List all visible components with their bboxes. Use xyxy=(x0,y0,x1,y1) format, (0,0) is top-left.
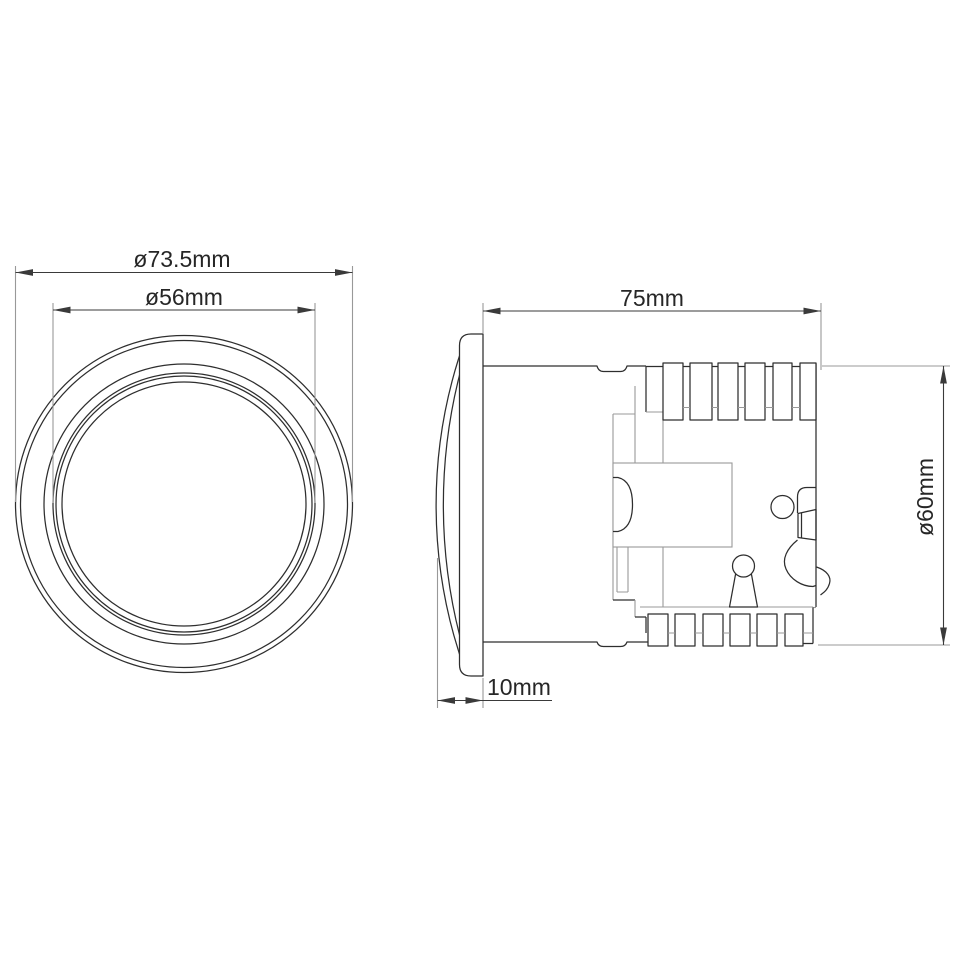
heatsink-fins-top xyxy=(663,363,816,420)
technical-drawing: ø73.5mm ø56mm xyxy=(0,0,972,972)
dimension-body-diameter: ø60mm xyxy=(818,366,950,645)
bezel-circles xyxy=(16,336,353,673)
locator-pin xyxy=(730,555,758,607)
arrow-down-icon xyxy=(940,628,947,646)
dimension-label-body-diameter: ø60mm xyxy=(912,458,938,536)
arrow-right-icon xyxy=(804,308,822,315)
heatsink-fins-bottom xyxy=(648,614,813,646)
arrow-right-icon xyxy=(335,269,353,276)
dimension-label-overall-length: 75mm xyxy=(620,285,684,311)
front-view-lamp-face: ø73.5mm ø56mm xyxy=(16,246,353,673)
dimension-overall-length: 75mm xyxy=(483,285,821,370)
arrow-right-icon xyxy=(298,307,316,314)
arrow-right-icon xyxy=(466,697,484,704)
driver-box xyxy=(613,463,732,592)
dimension-label-inner-diameter: ø56mm xyxy=(145,284,223,310)
trim-flange xyxy=(460,334,484,676)
dimension-lens-depth: 10mm xyxy=(438,558,553,708)
dimension-inner-diameter: ø56mm xyxy=(53,284,315,503)
mounting-clip xyxy=(784,488,830,596)
dimension-label-outer-diameter: ø73.5mm xyxy=(133,246,230,272)
dimension-label-lens-depth: 10mm xyxy=(487,674,551,700)
arrow-left-icon xyxy=(483,308,501,315)
arrow-up-icon xyxy=(940,366,947,384)
arrow-left-icon xyxy=(16,269,34,276)
screw-hole xyxy=(771,496,794,519)
side-view-lamp-profile: 75mm ø60mm 10mm xyxy=(436,285,950,708)
arrow-left-icon xyxy=(53,307,71,314)
arrow-left-icon xyxy=(438,697,456,704)
